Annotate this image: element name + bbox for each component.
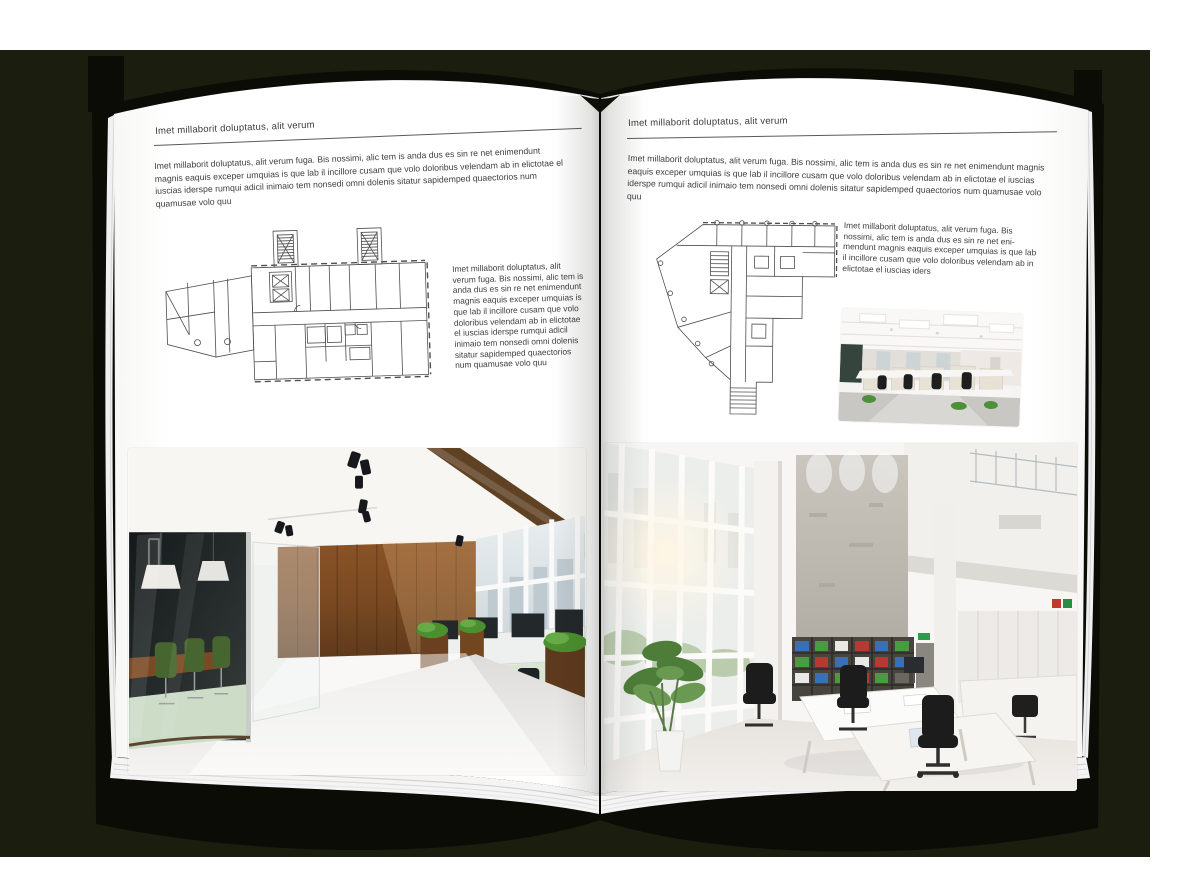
concrete-wall [796,451,908,639]
right-floor-plan [645,215,843,419]
glass-partition [253,542,319,721]
left-page-title: Imet millaborit doluptatus, alit verum [155,109,585,137]
mezzanine [904,443,1077,593]
left-side-paragraph: Imet millaborit doluptatus, alit verum f… [452,260,587,371]
glass-meeting-room [129,532,251,749]
pillar [934,503,956,715]
left-page: Imet millaborit doluptatus, alit verum I… [0,0,600,891]
left-office-photo [128,448,586,775]
right-header-rule [627,131,1057,139]
right-page-title: Imet millaborit doluptatus, alit verum [628,111,1058,129]
left-floor-plan [152,223,454,414]
brochure-mockup: Imet millaborit doluptatus, alit verum I… [0,0,1200,891]
right-office-photo [604,443,1077,791]
small-office-photo [838,308,1023,427]
right-page: Imet millaborit doluptatus, alit verum I… [600,0,1200,891]
window-wall [604,443,754,765]
right-intro-paragraph: Imet millaborit doluptatus, alit verum f… [627,152,1048,212]
left-intro-paragraph: Imet millaborit doluptatus, alit verum f… [154,143,568,210]
right-side-paragraph: Imet millaborit doluptatus, alit verum f… [842,220,1042,280]
